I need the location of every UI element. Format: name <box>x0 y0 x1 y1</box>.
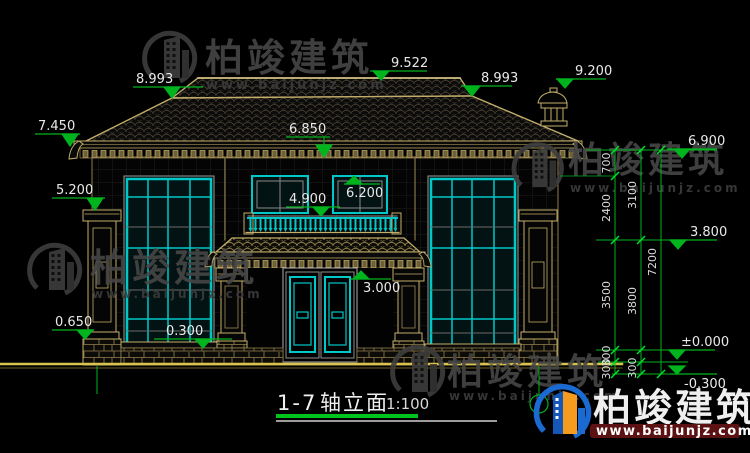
elevation-roof-left: 8.993 <box>136 72 173 87</box>
porch-pilaster-right <box>393 268 424 348</box>
elevation-eave-left: 7.450 <box>38 119 75 134</box>
elevation-window2-top: 6.200 <box>346 186 383 201</box>
title-axis-label: 1-7 <box>277 391 317 415</box>
balcony-railing <box>244 213 401 234</box>
chain-dim-300c: 300 <box>626 358 639 379</box>
watermark-logo-icon <box>30 245 80 293</box>
elevation-zero: ±0.000 <box>681 335 729 350</box>
chimney <box>538 88 567 126</box>
window-right <box>428 176 518 350</box>
corner-pillar-right <box>519 210 557 365</box>
chain-dim-3100: 3100 <box>626 181 639 209</box>
watermark-top: 柏竣建筑 www.baijunjz.com <box>145 33 387 93</box>
chain-dim-3800: 3800 <box>626 287 639 315</box>
elevation-porch-ceiling: 3.000 <box>363 281 400 296</box>
elevation-balcony-eave: 6.850 <box>289 122 326 137</box>
elevation-drawing-canvas: 柏竣建筑 www.baijunjz.com 柏竣建筑 www.baijunjz.… <box>0 0 750 453</box>
brand-logo: 柏竣建筑 www.baijunjz.com <box>536 386 750 439</box>
entrance-door <box>280 268 360 362</box>
watermark-url: www.baijunjz.com <box>206 78 387 93</box>
chain-dim-2400: 2400 <box>600 194 613 222</box>
watermark-url: www.baijunjz.com <box>570 181 741 195</box>
watermark-brand: 柏竣建筑 <box>447 352 607 393</box>
elevation-floor2: 3.800 <box>690 225 727 240</box>
title-scale: 1:100 <box>386 395 429 413</box>
watermark-logo-icon <box>393 347 443 395</box>
title-underline-green <box>276 414 418 418</box>
chain-dim-300b: 300 <box>600 359 613 380</box>
watermark-url: www.baijunjz.com <box>92 287 263 301</box>
elevation-window-sill: 0.300 <box>166 324 203 339</box>
watermark-brand: 柏竣建筑 <box>90 246 258 290</box>
chain-dim-700: 700 <box>600 153 613 174</box>
title-name: 轴立面 <box>320 391 389 415</box>
elevation-eave-right: 6.900 <box>688 134 725 149</box>
elevation-window2-sill: 4.900 <box>289 192 326 207</box>
elevation-pillar-cap: 5.200 <box>56 183 93 198</box>
elevation-ridge: 9.522 <box>391 56 428 71</box>
brand-logo-url: www.baijunjz.com <box>596 424 750 439</box>
elevation-plinth: 0.650 <box>55 315 92 330</box>
cad-viewport: 柏竣建筑 www.baijunjz.com 柏竣建筑 www.baijunjz.… <box>0 0 750 453</box>
watermark-brand: 柏竣建筑 <box>205 36 373 80</box>
elevation-roof-right: 8.993 <box>481 71 518 86</box>
watermark-left: 柏竣建筑 www.baijunjz.com <box>30 245 263 301</box>
elevation-chimney: 9.200 <box>575 64 612 79</box>
chain-dim-3500: 3500 <box>600 281 613 309</box>
chain-dim-7200: 7200 <box>646 248 659 276</box>
